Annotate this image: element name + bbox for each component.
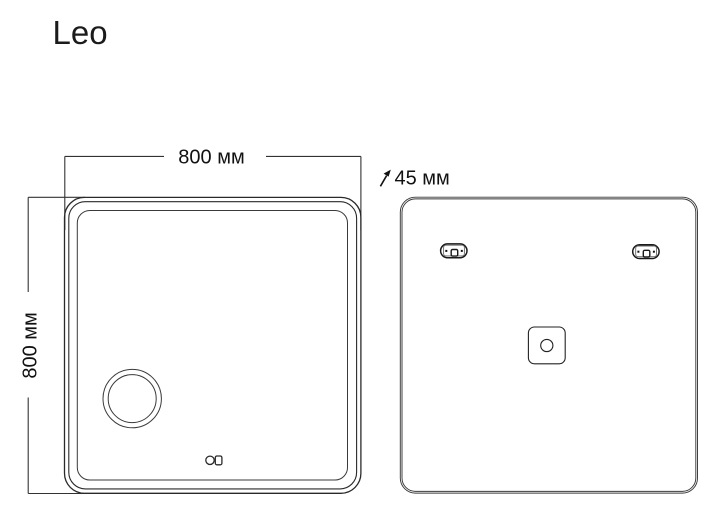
svg-text:800 мм: 800 мм [178,147,244,169]
svg-text:Leo: Leo [53,14,108,51]
svg-text:45 мм: 45 мм [395,168,450,190]
svg-text:800 мм: 800 мм [20,312,42,378]
